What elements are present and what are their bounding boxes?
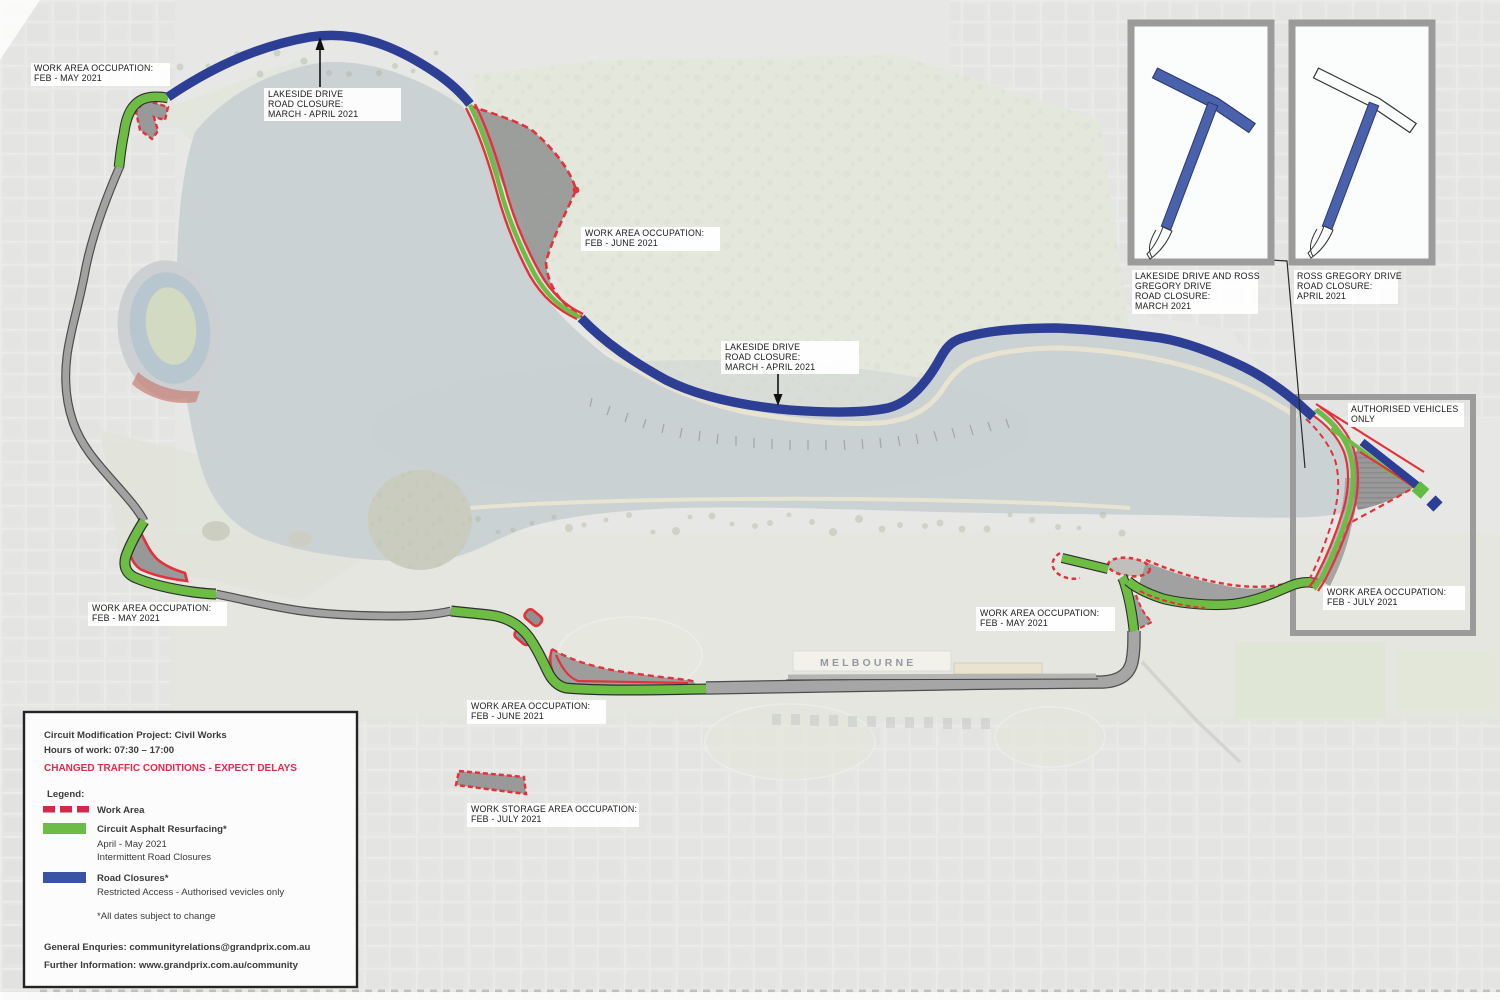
svg-text:Work Area: Work Area <box>97 805 145 816</box>
svg-text:FEB - MAY 2021: FEB - MAY 2021 <box>92 613 160 623</box>
svg-text:Legend:: Legend: <box>47 789 84 800</box>
svg-text:ROSS GREGORY DRIVE: ROSS GREGORY DRIVE <box>1297 271 1402 281</box>
svg-text:APRIL 2021: APRIL 2021 <box>1297 291 1346 301</box>
svg-text:FEB - JULY 2021: FEB - JULY 2021 <box>471 814 542 824</box>
svg-text:WORK AREA OCCUPATION:: WORK AREA OCCUPATION: <box>34 63 153 73</box>
svg-text:Circuit Modification Project:: Circuit Modification Project: Civil Work… <box>44 730 227 741</box>
svg-text:FEB - JUNE 2021: FEB - JUNE 2021 <box>471 711 544 721</box>
svg-text:ROAD CLOSURE:: ROAD CLOSURE: <box>725 352 800 362</box>
svg-text:FEB - MAY 2021: FEB - MAY 2021 <box>34 73 102 83</box>
svg-text:FEB - JULY 2021: FEB - JULY 2021 <box>1327 597 1398 607</box>
svg-text:*All dates subject to change: *All dates subject to change <box>97 911 215 922</box>
svg-text:MARCH - APRIL 2021: MARCH - APRIL 2021 <box>268 109 358 119</box>
svg-text:Intermittent Road Closures: Intermittent Road Closures <box>97 852 211 863</box>
svg-text:LAKESIDE DRIVE AND ROSS: LAKESIDE DRIVE AND ROSS <box>1135 271 1260 281</box>
svg-text:ROAD CLOSURE:: ROAD CLOSURE: <box>1297 281 1372 291</box>
svg-text:WORK STORAGE AREA OCCUPATION:: WORK STORAGE AREA OCCUPATION: <box>471 804 637 814</box>
svg-text:FEB - MAY 2021: FEB - MAY 2021 <box>980 618 1048 628</box>
svg-text:WORK AREA OCCUPATION:: WORK AREA OCCUPATION: <box>471 701 590 711</box>
svg-text:AUTHORISED VEHICLES: AUTHORISED VEHICLES <box>1351 404 1458 414</box>
svg-text:LAKESIDE DRIVE: LAKESIDE DRIVE <box>268 89 343 99</box>
svg-text:Road Closures*: Road Closures* <box>97 873 169 884</box>
svg-text:ROAD CLOSURE:: ROAD CLOSURE: <box>268 99 343 109</box>
svg-text:MARCH 2021: MARCH 2021 <box>1135 301 1191 311</box>
svg-text:WORK AREA OCCUPATION:: WORK AREA OCCUPATION: <box>980 608 1099 618</box>
svg-text:ROAD CLOSURE:: ROAD CLOSURE: <box>1135 291 1210 301</box>
svg-text:ONLY: ONLY <box>1351 414 1375 424</box>
svg-text:WORK AREA OCCUPATION:: WORK AREA OCCUPATION: <box>92 603 211 613</box>
svg-text:WORK AREA OCCUPATION:: WORK AREA OCCUPATION: <box>1327 587 1446 597</box>
svg-text:April - May 2021: April - May 2021 <box>97 839 167 850</box>
svg-text:MELBOURNE: MELBOURNE <box>820 657 916 669</box>
svg-text:WORK AREA OCCUPATION:: WORK AREA OCCUPATION: <box>585 228 704 238</box>
svg-text:Further Information: www.grand: Further Information: www.grandprix.com.a… <box>44 960 299 971</box>
svg-text:LAKESIDE DRIVE: LAKESIDE DRIVE <box>725 342 800 352</box>
svg-text:GREGORY DRIVE: GREGORY DRIVE <box>1135 281 1212 291</box>
svg-text:Circuit Asphalt Resurfacing*: Circuit Asphalt Resurfacing* <box>97 824 227 835</box>
svg-text:FEB - JUNE 2021: FEB - JUNE 2021 <box>585 238 658 248</box>
svg-text:Hours of work: 07:30 – 17:00: Hours of work: 07:30 – 17:00 <box>44 745 174 756</box>
svg-text:Restricted Access - Authorised: Restricted Access - Authorised vevicles … <box>97 887 284 898</box>
svg-text:CHANGED TRAFFIC CONDITIONS - E: CHANGED TRAFFIC CONDITIONS - EXPECT DELA… <box>44 763 297 774</box>
svg-text:General Enquries: communityrel: General Enquries: communityrelations@gra… <box>44 942 310 953</box>
svg-text:MARCH - APRIL 2021: MARCH - APRIL 2021 <box>725 362 815 372</box>
